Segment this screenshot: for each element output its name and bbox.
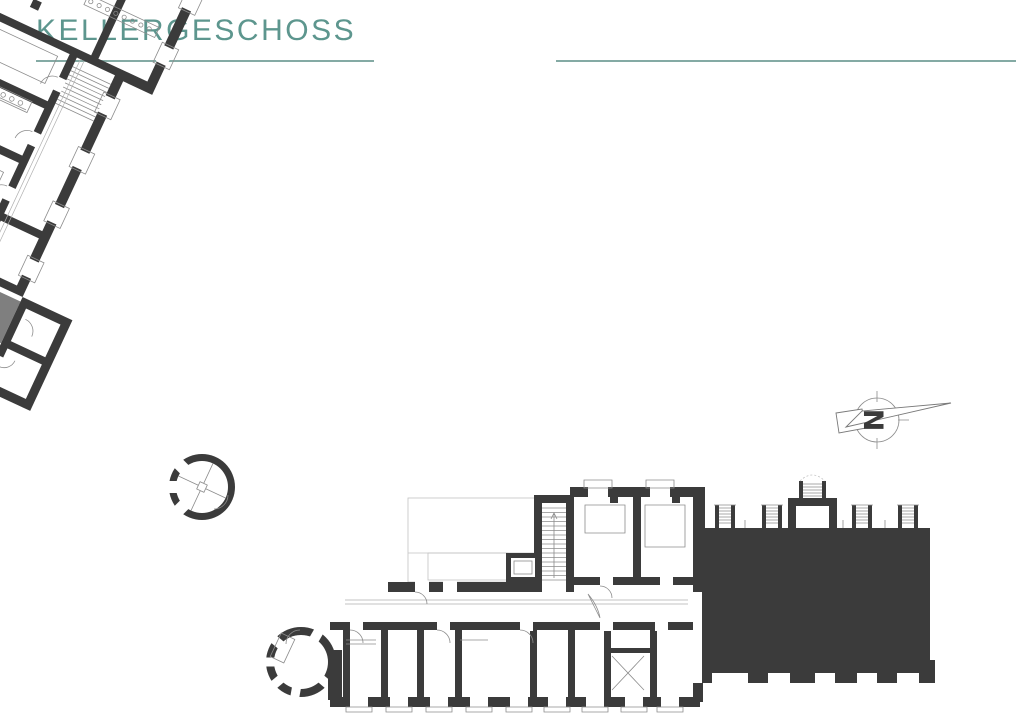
elevator-shaft: [506, 553, 540, 582]
unexcavated-block: [693, 475, 935, 702]
south-wing-walls: [328, 480, 705, 712]
round-tower-south: [264, 626, 336, 699]
wing-window-openings: [0, 0, 240, 344]
south-wing: [328, 480, 705, 712]
page: KELLERGESCHOSS: [0, 0, 1024, 714]
north-arrow-label: N: [857, 409, 888, 432]
south-stair: [542, 508, 566, 580]
round-tower-west: [167, 452, 236, 521]
north-west-wing: [0, 0, 260, 523]
entrance-porch: [788, 475, 837, 528]
north-arrow: N: [836, 391, 951, 449]
shaft-x-mark: [612, 656, 644, 690]
floor-plan: N: [0, 0, 1024, 714]
